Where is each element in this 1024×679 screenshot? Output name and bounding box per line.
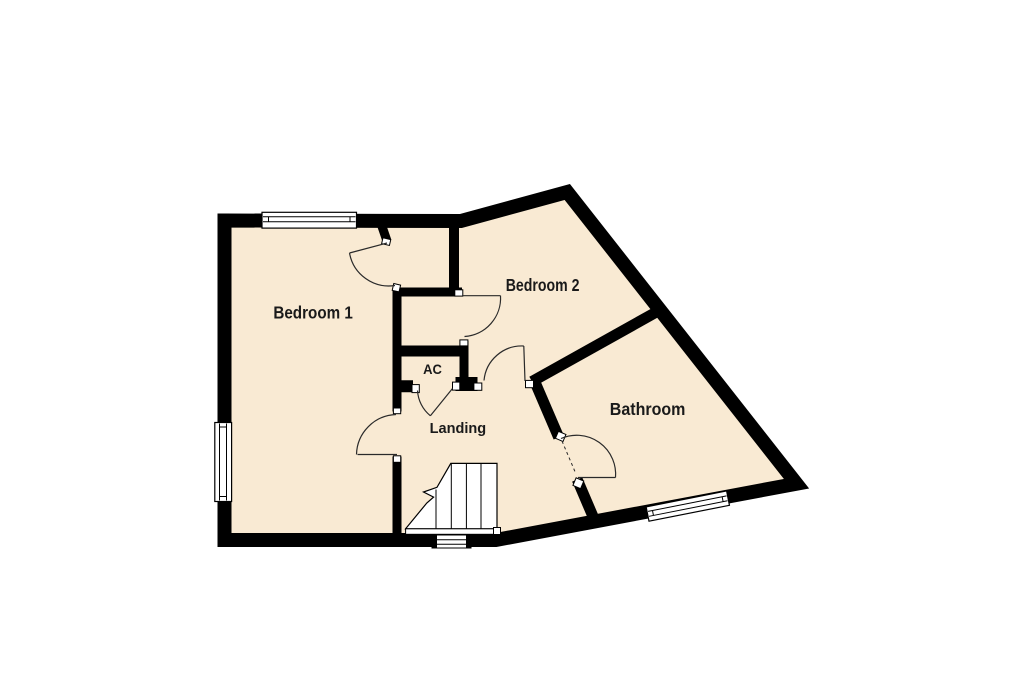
svg-text:Bathroom: Bathroom: [610, 399, 686, 419]
svg-text:Bedroom 2: Bedroom 2: [506, 275, 580, 295]
svg-text:Landing: Landing: [430, 420, 487, 437]
svg-text:AC: AC: [423, 361, 442, 377]
svg-text:Bedroom 1: Bedroom 1: [273, 303, 353, 323]
